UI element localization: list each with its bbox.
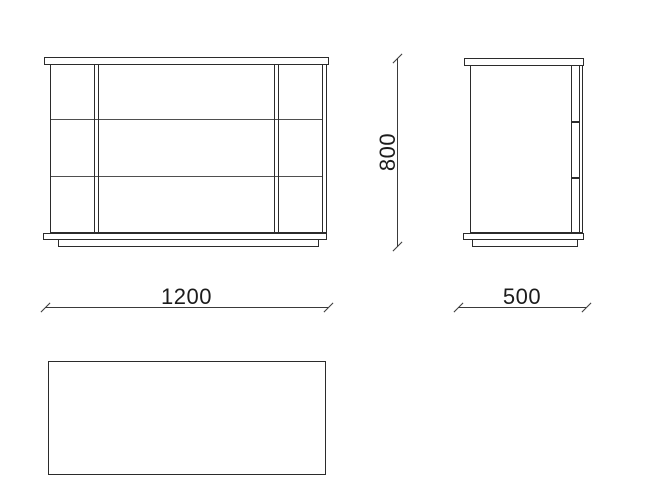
front-plinth: [58, 239, 319, 247]
dimension-depth-label: 500: [458, 287, 586, 307]
side-front-panel-inner-line: [571, 66, 572, 232]
side-front-panel-outer-line: [579, 66, 580, 232]
dimension-height-label: 800: [378, 133, 398, 171]
top-view-outline: [48, 361, 326, 475]
front-divider-right: [274, 65, 279, 233]
dimension-width-label: 1200: [45, 287, 328, 307]
side-body-outline: [470, 65, 583, 233]
side-plinth: [472, 239, 578, 247]
front-right-wall-inner-line: [322, 65, 323, 232]
side-drawer-joint-upper: [572, 121, 580, 123]
side-drawer-joint-lower: [572, 177, 580, 179]
front-divider-left: [94, 65, 99, 233]
front-shelf-line-lower: [51, 176, 323, 177]
front-body-outline: [50, 64, 327, 233]
drawing-canvas: 1200 500 800: [0, 0, 663, 497]
front-shelf-line-upper: [51, 119, 323, 120]
